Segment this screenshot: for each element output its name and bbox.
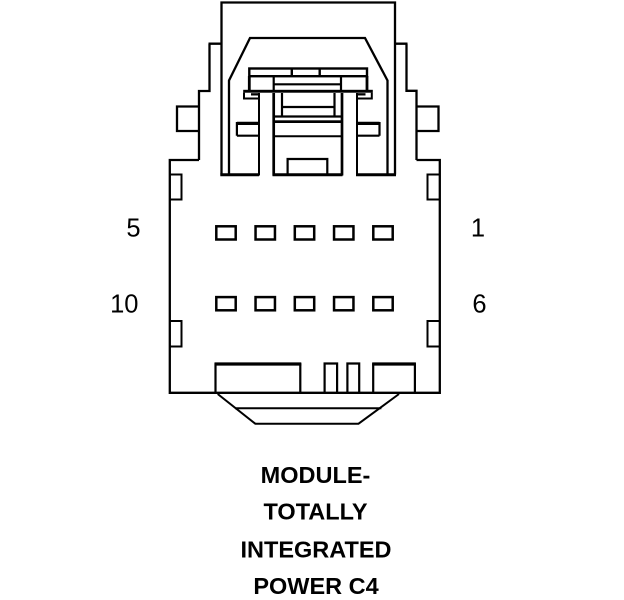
svg-text:TOTALLY: TOTALLY <box>263 499 367 525</box>
svg-text:6: 6 <box>472 291 486 319</box>
svg-text:1: 1 <box>471 215 485 243</box>
svg-text:10: 10 <box>110 291 138 319</box>
svg-text:INTEGRATED: INTEGRATED <box>240 537 391 563</box>
svg-text:MODULE-: MODULE- <box>261 462 371 488</box>
svg-text:5: 5 <box>126 215 140 243</box>
svg-text:POWER C4: POWER C4 <box>253 573 378 599</box>
